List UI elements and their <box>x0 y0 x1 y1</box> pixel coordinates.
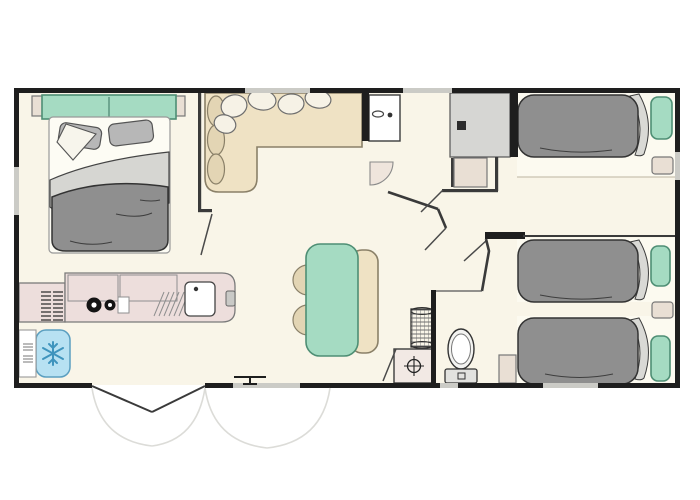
floor-plan-page <box>0 0 700 500</box>
door-leaf-left <box>92 386 152 412</box>
bed-pillow <box>651 336 670 381</box>
hob-burner-center <box>91 302 96 307</box>
bedroom2-wall <box>510 93 518 157</box>
window <box>543 383 598 388</box>
master-bedroom-wall <box>198 209 212 212</box>
counter-tap <box>226 291 235 306</box>
pillow-right <box>108 119 154 146</box>
bedroom2-partition <box>442 189 498 192</box>
wardrobe-handle <box>457 121 466 130</box>
bed-pillow <box>651 97 672 139</box>
single-bed-duvet <box>518 95 638 157</box>
wall-right <box>675 88 680 388</box>
bathroom-wall <box>362 93 369 141</box>
bedside-shelf <box>652 302 673 318</box>
single-bed-duvet <box>518 240 638 302</box>
sofa-back-cushion <box>208 154 225 184</box>
door-swing-arc <box>152 388 205 446</box>
single-bed-duvet <box>518 318 638 384</box>
wall-top <box>14 88 680 93</box>
washbasin-cabinet <box>369 95 400 141</box>
toilet-cistern <box>445 369 477 383</box>
washbasin-drain <box>388 113 393 118</box>
kitchen-sink <box>185 282 215 316</box>
dining-table <box>306 244 358 356</box>
master-bedroom <box>32 95 185 253</box>
corner-cabinet <box>499 355 516 383</box>
gray-duvet <box>52 184 168 251</box>
bedside-shelf <box>652 157 673 174</box>
bedroom2-partition <box>495 157 498 191</box>
step-shelf <box>454 158 487 187</box>
mobile-home-floor-plan <box>0 0 700 500</box>
bedroom-divider-wall <box>485 232 525 239</box>
door-leaf-right <box>152 386 205 412</box>
door-swing-arc <box>267 388 330 448</box>
master-bedroom-wall <box>198 93 201 211</box>
sink-faucet <box>194 287 198 291</box>
door-swing-arc <box>205 388 267 448</box>
hob-controls <box>118 297 129 313</box>
window <box>675 152 680 180</box>
hob-burner-center <box>108 303 112 307</box>
toilet-seat <box>452 334 471 364</box>
window <box>440 383 458 388</box>
dining-area <box>293 244 378 356</box>
wc-wall-left <box>431 290 436 383</box>
bed-pillow <box>651 246 670 286</box>
window <box>14 167 19 215</box>
window <box>403 88 452 93</box>
door-swing-arc <box>92 388 152 446</box>
microwave-cabinet <box>19 330 36 377</box>
window <box>245 88 310 93</box>
wall-left <box>14 88 19 388</box>
wall-bottom <box>14 383 92 388</box>
